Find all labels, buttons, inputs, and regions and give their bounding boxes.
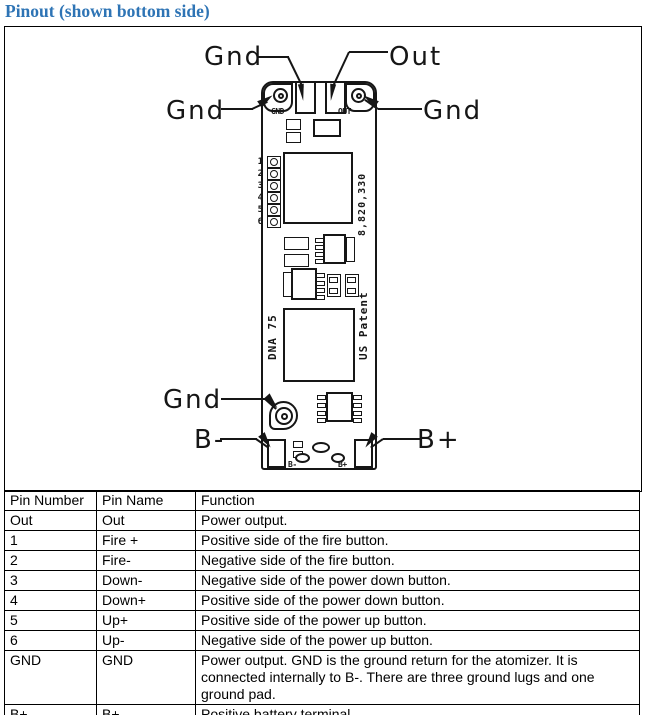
component-pin bbox=[316, 273, 325, 278]
table-row: 5 Up+ Positive side of the power up butt… bbox=[5, 611, 640, 631]
label-gnd-right: Gnd bbox=[423, 98, 482, 124]
button-pin-hole bbox=[270, 158, 278, 166]
cell-function: Negative side of the power down button. bbox=[196, 571, 640, 591]
cell-pin-name: Fire- bbox=[97, 551, 196, 571]
label-b-plus: B+ bbox=[417, 427, 461, 453]
leader-line bbox=[221, 398, 266, 400]
leader-line bbox=[258, 56, 289, 58]
button-pin-hole bbox=[270, 206, 278, 214]
cell-function: Power output. GND is the ground return f… bbox=[196, 651, 640, 705]
component-pin bbox=[353, 411, 362, 416]
secondary-ic-chip bbox=[283, 308, 355, 382]
table-row: 4 Down+ Positive side of the power down … bbox=[5, 591, 640, 611]
silkscreen-out-text: OUT bbox=[338, 108, 351, 116]
us-patent-text: US Patent bbox=[358, 291, 369, 360]
cell-pin-name: B+ bbox=[97, 705, 196, 715]
main-ic-chip bbox=[283, 152, 353, 224]
table-row: 1 Fire + Positive side of the fire butto… bbox=[5, 531, 640, 551]
leader-line bbox=[220, 438, 257, 440]
pin-number-label: 5 bbox=[253, 204, 263, 216]
cell-pin-number: 5 bbox=[5, 611, 97, 631]
ground-lug-hole-center bbox=[281, 413, 288, 420]
component bbox=[327, 274, 341, 297]
component bbox=[291, 268, 317, 300]
component-pin bbox=[315, 252, 324, 257]
soic8-chip bbox=[326, 392, 353, 422]
cell-pin-name: Up+ bbox=[97, 611, 196, 631]
component-pin bbox=[316, 295, 325, 300]
cell-function: Power output. bbox=[196, 511, 640, 531]
leader-line bbox=[221, 108, 253, 110]
table-row: 3 Down- Negative side of the power down … bbox=[5, 571, 640, 591]
cell-function: Positive side of the power up button. bbox=[196, 611, 640, 631]
label-b-minus: B- bbox=[194, 427, 225, 453]
cell-pin-number: 3 bbox=[5, 571, 97, 591]
cell-function: Negative side of the fire button. bbox=[196, 551, 640, 571]
cell-pin-name: Down+ bbox=[97, 591, 196, 611]
silkscreen-bminus-text: B- bbox=[288, 461, 297, 469]
table-row: Out Out Power output. bbox=[5, 511, 640, 531]
cell-pin-number: Out bbox=[5, 511, 97, 531]
cell-pin-name: GND bbox=[97, 651, 196, 705]
component bbox=[286, 132, 301, 143]
pin-number-label: 4 bbox=[253, 192, 263, 204]
label-gnd-bottom: Gnd bbox=[163, 387, 222, 413]
pin-number-label: 2 bbox=[253, 168, 263, 180]
header-pin-number: Pin Number bbox=[5, 491, 97, 511]
cell-pin-number: B+ bbox=[5, 705, 97, 715]
component-pin bbox=[317, 418, 326, 423]
component bbox=[284, 254, 309, 267]
silkscreen-bplus-text: B+ bbox=[338, 461, 347, 469]
cell-function: Negative side of the power up button. bbox=[196, 631, 640, 651]
pinout-table: Pin Number Pin Name Function Out Out Pow… bbox=[4, 490, 640, 715]
page-title: Pinout (shown bottom side) bbox=[5, 1, 210, 22]
chip-name-text: DNA 75 bbox=[267, 314, 278, 360]
component-pin bbox=[316, 288, 325, 293]
component-pin bbox=[315, 238, 324, 243]
component-pin bbox=[315, 245, 324, 250]
table-row: GND GND Power output. GND is the ground … bbox=[5, 651, 640, 705]
leader-line bbox=[383, 438, 420, 440]
component-pin bbox=[353, 418, 362, 423]
component-pin bbox=[353, 403, 362, 408]
leader-line bbox=[378, 108, 422, 110]
cell-pin-number: 6 bbox=[5, 631, 97, 651]
table-row: 6 Up- Negative side of the power up butt… bbox=[5, 631, 640, 651]
mount-hole-left-center bbox=[278, 93, 284, 99]
cell-pin-number: 4 bbox=[5, 591, 97, 611]
component bbox=[293, 441, 303, 448]
cell-pin-number: 1 bbox=[5, 531, 97, 551]
component bbox=[345, 274, 359, 297]
button-pin-hole bbox=[270, 170, 278, 178]
cell-pin-name: Up- bbox=[97, 631, 196, 651]
component-pin bbox=[317, 403, 326, 408]
component-pin bbox=[317, 411, 326, 416]
cell-pin-name: Fire + bbox=[97, 531, 196, 551]
component bbox=[346, 237, 355, 262]
document-page: Pinout (shown bottom side) GND OUT 1 2 3… bbox=[0, 0, 645, 715]
component bbox=[286, 119, 301, 130]
component-pin bbox=[316, 281, 325, 286]
component-pin bbox=[353, 395, 362, 400]
cell-pin-number: GND bbox=[5, 651, 97, 705]
cell-pin-name: Down- bbox=[97, 571, 196, 591]
table-row: B+ B+ Positive battery terminal. bbox=[5, 705, 640, 715]
component bbox=[295, 453, 310, 463]
button-pin-hole bbox=[270, 194, 278, 202]
cell-function: Positive side of the fire button. bbox=[196, 531, 640, 551]
button-pin-hole bbox=[270, 182, 278, 190]
silkscreen-gnd-text: GND bbox=[271, 108, 284, 116]
cell-function: Positive side of the power down button. bbox=[196, 591, 640, 611]
pin-number-label: 1 bbox=[253, 156, 263, 168]
pin-number-label: 3 bbox=[253, 180, 263, 192]
component-pin bbox=[315, 259, 324, 264]
patent-number-text: 8,820,330 bbox=[358, 173, 368, 236]
header-pin-name: Pin Name bbox=[97, 491, 196, 511]
table-row: 2 Fire- Negative side of the fire button… bbox=[5, 551, 640, 571]
pin-number-label: 6 bbox=[253, 216, 263, 228]
cell-function: Positive battery terminal. bbox=[196, 705, 640, 715]
header-function: Function bbox=[196, 491, 640, 511]
leader-line bbox=[349, 51, 388, 53]
label-gnd-top: Gnd bbox=[204, 44, 263, 70]
cell-pin-number: 2 bbox=[5, 551, 97, 571]
button-pin-hole bbox=[270, 218, 278, 226]
table-header-row: Pin Number Pin Name Function bbox=[5, 491, 640, 511]
component bbox=[323, 234, 346, 264]
component bbox=[312, 442, 330, 453]
label-gnd-left: Gnd bbox=[166, 98, 225, 124]
component bbox=[284, 237, 309, 250]
component bbox=[313, 119, 341, 137]
cell-pin-name: Out bbox=[97, 511, 196, 531]
label-out-top: Out bbox=[389, 44, 442, 70]
component-pin bbox=[317, 395, 326, 400]
